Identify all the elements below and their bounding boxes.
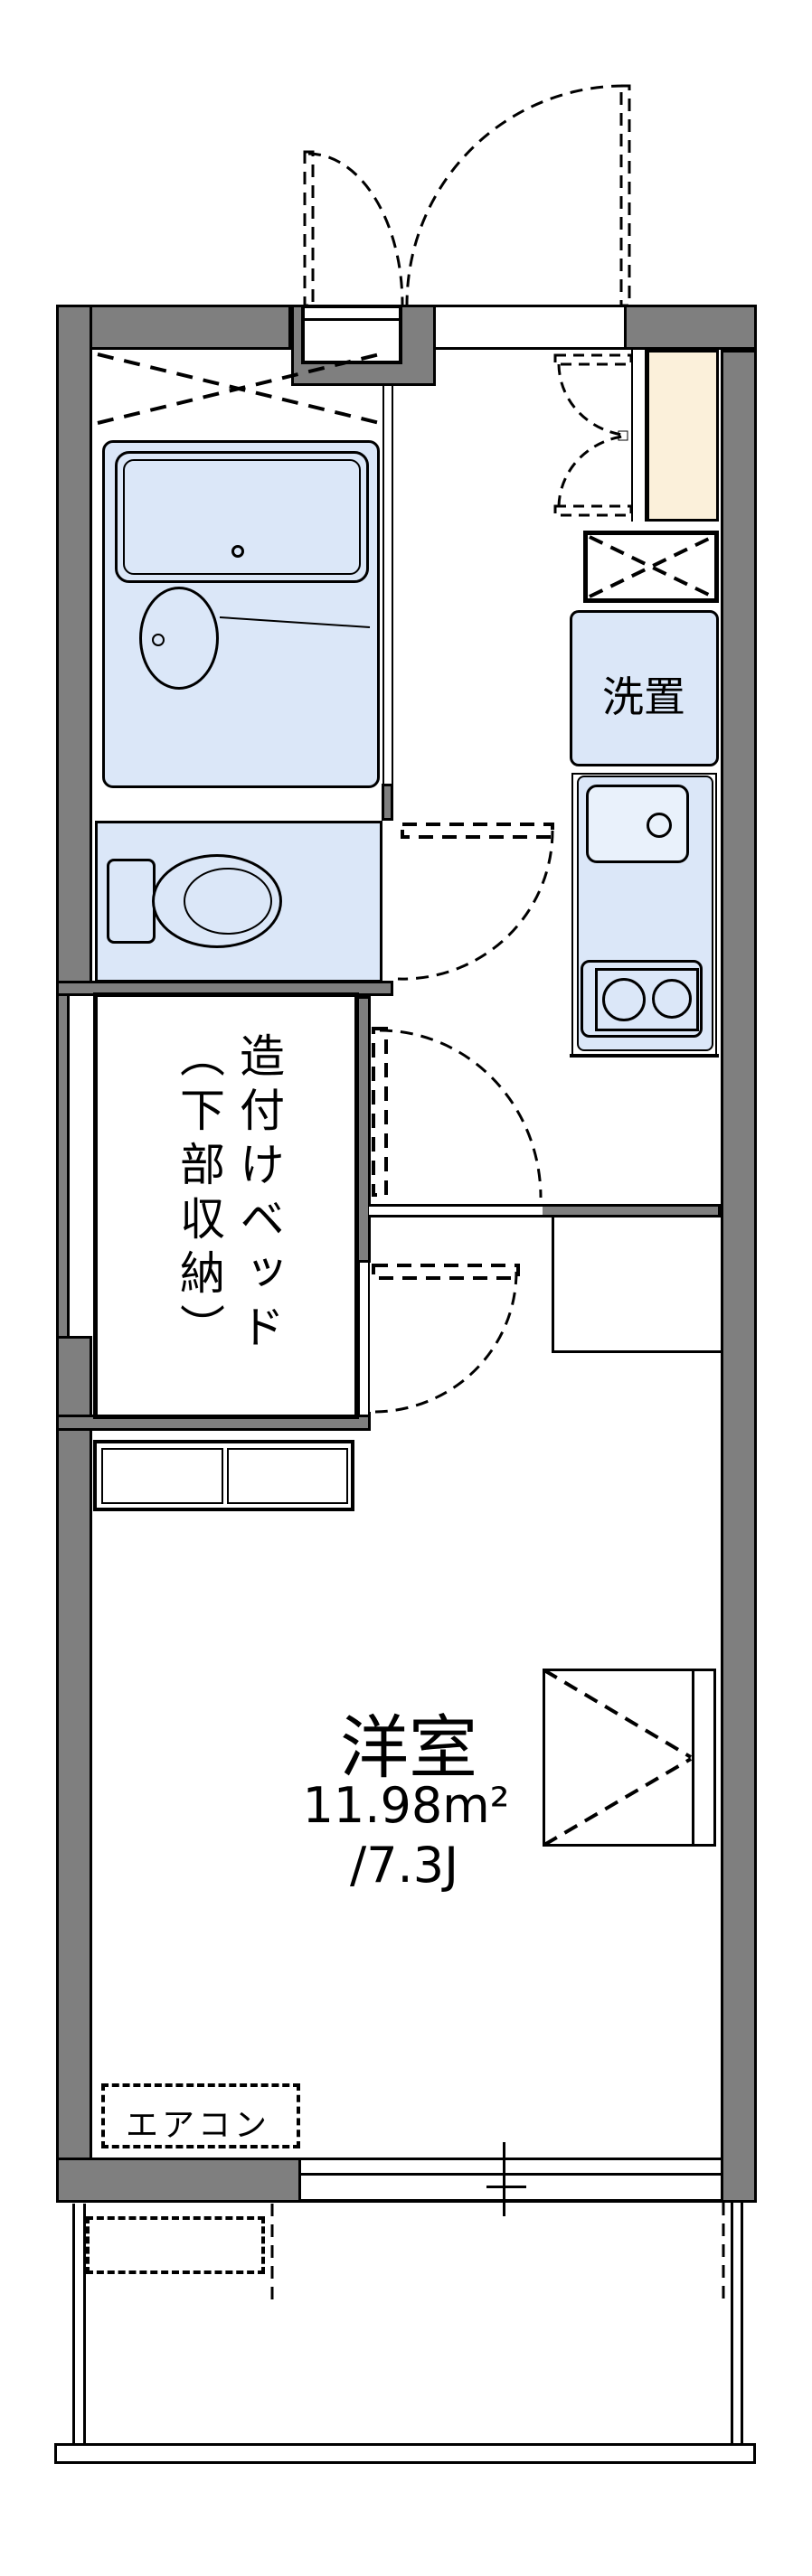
- entrance-main-door-arc: [407, 86, 624, 305]
- balcony-hatch: [86, 2216, 265, 2274]
- threshold-main-room: [369, 1204, 543, 1217]
- washroom-door-arc: [398, 831, 552, 979]
- closet-door-arc-top: [559, 364, 622, 435]
- window-pane-overlap: [486, 2186, 526, 2188]
- kitchen-sink: [586, 785, 689, 863]
- toilet-tank: [107, 859, 156, 944]
- toilet-bowl: [152, 854, 282, 948]
- bed-label: 造付けベッド （下部収納）: [169, 1032, 288, 1394]
- storage-door-frame: [358, 1263, 370, 1415]
- entrance-sill-line: [305, 318, 399, 321]
- storage-door-leaf: [373, 1265, 518, 1278]
- bathtub-drain: [231, 545, 244, 558]
- bathtub-inner: [123, 459, 361, 575]
- balcony-rail: [54, 2443, 756, 2464]
- wall-left-main: [56, 1336, 92, 2203]
- wall-stub-bath-hall: [382, 784, 393, 821]
- washroom-door-leaf: [402, 824, 552, 837]
- aircon-label: エアコン: [126, 2099, 270, 2146]
- window-frame-top: [301, 2158, 721, 2160]
- window-center-tick: [503, 2142, 505, 2216]
- bed-label-line2: （下部収納）: [169, 1032, 229, 1394]
- entrance-inner-door-arc: [308, 154, 402, 305]
- stove-burner-right: [652, 979, 692, 1019]
- partition-bath-hall: [382, 386, 393, 784]
- closet-door-leaf-top: [555, 355, 631, 364]
- wall-right: [721, 350, 757, 2203]
- shelf-cell-left: [101, 1448, 223, 1504]
- wall-top-right: [624, 305, 757, 350]
- wall-bottom-left: [56, 2158, 301, 2203]
- main-room-area-tatami: /7.3J: [350, 1837, 458, 1894]
- wall-mid-horizontal: [540, 1204, 721, 1217]
- side-storage-square: [543, 1669, 716, 1847]
- entrance-doorway-opening: [436, 305, 624, 350]
- stove-burner-left: [602, 978, 646, 1021]
- main-room-area-sqm: 11.98m²: [303, 1777, 510, 1834]
- pipe-space-box: [583, 531, 719, 603]
- kitchen-faucet: [647, 813, 672, 838]
- nook-line-vertical: [552, 1217, 554, 1353]
- window-frame-bottom: [301, 2199, 721, 2203]
- washbasin-faucet: [152, 634, 165, 646]
- shelf-cell-right: [227, 1448, 348, 1504]
- storage-door-arc: [375, 1272, 516, 1412]
- closet-track: [631, 350, 647, 522]
- entrance-inner-door-leaf: [305, 152, 313, 306]
- balcony-left-line-a: [72, 2204, 75, 2443]
- window-pane-line: [301, 2173, 721, 2176]
- entrance-niche: [301, 305, 402, 364]
- balcony-right-line-a: [731, 2203, 733, 2443]
- entrance-main-door-leaf: [621, 86, 629, 306]
- wall-left-storage-thin: [56, 990, 70, 1342]
- wall-left-upper: [56, 305, 92, 994]
- closet-door-arc-bottom: [559, 437, 622, 506]
- entrance-closet: [647, 350, 719, 522]
- floorplan: 洗置 造付けベッド （下部収納） 洋室 11.98m² /7.3J エアコン: [0, 0, 812, 2576]
- laundry-label: 洗置: [602, 664, 685, 724]
- closet-door-leaf-bottom: [555, 506, 631, 515]
- main-room-door-leaf: [373, 1029, 386, 1195]
- bed-label-line1: 造付けベッド: [229, 1032, 288, 1394]
- main-room-door-arc: [380, 1030, 541, 1198]
- nook-line-horizontal: [552, 1350, 721, 1353]
- closet-door-meet-mark: [618, 431, 628, 440]
- side-storage-divider: [692, 1669, 694, 1847]
- kitchen-base-line: [570, 1054, 719, 1058]
- balcony-right-line-b: [741, 2203, 743, 2443]
